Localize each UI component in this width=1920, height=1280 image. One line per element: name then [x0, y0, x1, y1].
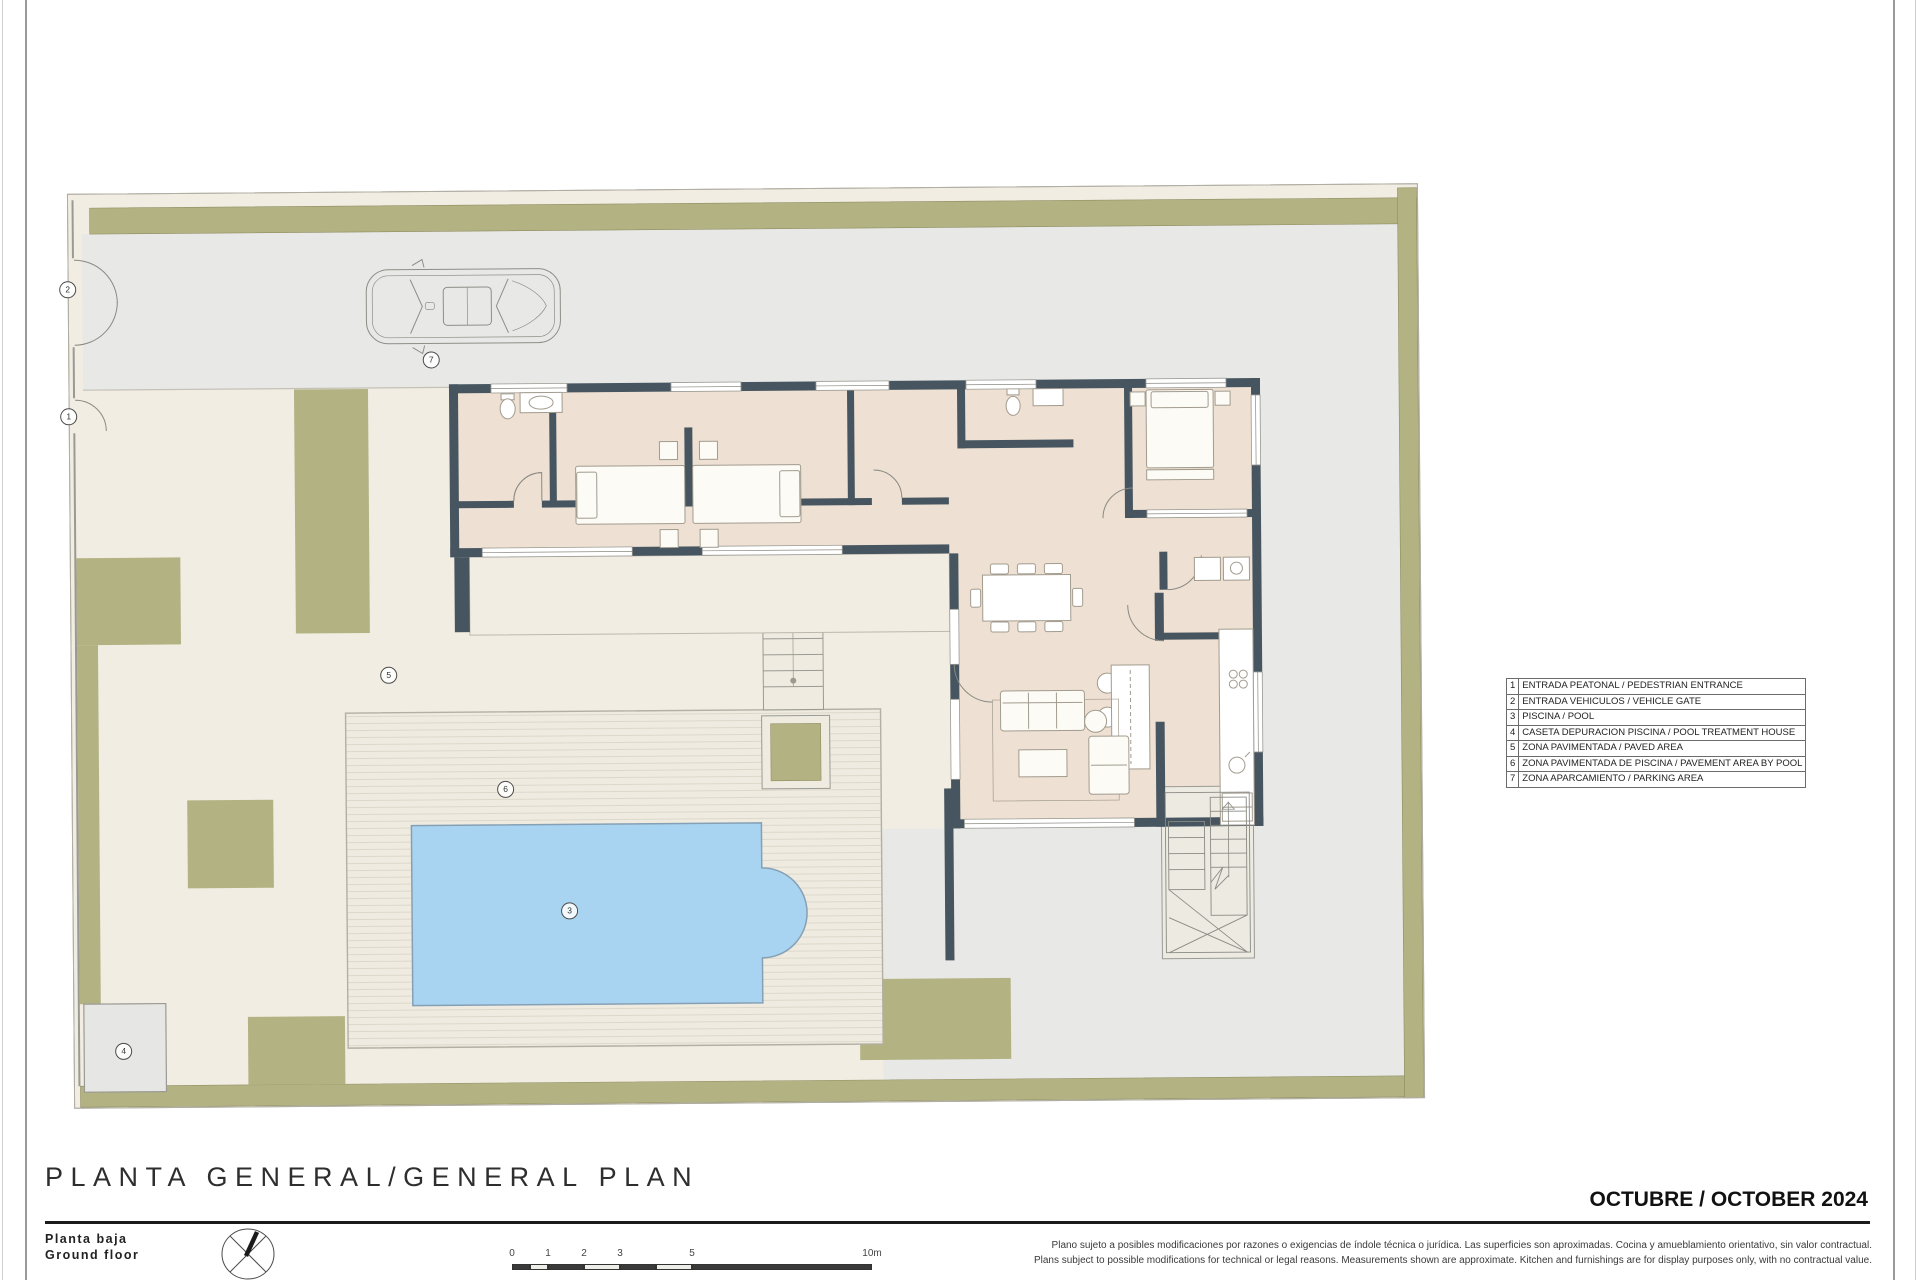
legend-row-label: ZONA PAVIMENTADA / PAVED AREA [1519, 741, 1806, 757]
legend-row-number: 4 [1507, 725, 1519, 741]
plan-marker-2: 2 [59, 281, 76, 298]
floor-label-en: Ground floor [45, 1248, 139, 1262]
plan-marker-5: 5 [380, 667, 397, 684]
plan-marker-7: 7 [423, 351, 440, 368]
disclaimer-en: Plans subject to possible modifications … [872, 1255, 1872, 1266]
garden-bed [248, 1016, 346, 1085]
legend-row-number: 2 [1507, 694, 1519, 710]
scale-segment [548, 1264, 584, 1270]
deck-planter [762, 715, 831, 789]
exterior-steps [763, 622, 824, 709]
floor-plan-drawing [59, 176, 1430, 1114]
parking-area [82, 224, 1401, 390]
legend-row-number: 6 [1507, 756, 1519, 772]
legend-row: 6ZONA PAVIMENTADA DE PISCINA / PAVEMENT … [1507, 756, 1806, 772]
garden-bed [76, 557, 181, 645]
scale-segment [530, 1264, 548, 1270]
site-plan: 1234567 [59, 176, 1430, 1114]
scale-bar: 0123510m [512, 1248, 892, 1276]
scale-label: 1 [545, 1248, 551, 1259]
legend-row-label: PISCINA / POOL [1519, 710, 1806, 726]
pool [411, 823, 807, 1006]
sheet-border-left-outer [2, 0, 3, 1280]
legend-row: 3PISCINA / POOL [1507, 710, 1806, 726]
scale-label: 5 [689, 1248, 695, 1259]
scale-segment [656, 1264, 692, 1270]
plan-marker-4: 4 [115, 1043, 132, 1060]
legend-row-label: ENTRADA PEATONAL / PEDESTRIAN ENTRANCE [1519, 679, 1806, 695]
legend-row-number: 7 [1507, 772, 1519, 788]
scale-label: 2 [581, 1248, 587, 1259]
legend-row: 1ENTRADA PEATONAL / PEDESTRIAN ENTRANCE [1507, 679, 1806, 695]
floor-label-es: Planta baja [45, 1232, 128, 1246]
covered-porch [469, 553, 950, 635]
legend-table: 1ENTRADA PEATONAL / PEDESTRIAN ENTRANCE2… [1506, 678, 1792, 788]
sheet-border-left-inner [25, 0, 27, 1280]
disclaimer-es: Plano sujeto a posibles modificaciones p… [872, 1240, 1872, 1251]
legend-row-number: 3 [1507, 710, 1519, 726]
plan-marker-6: 6 [497, 781, 514, 798]
legend-row-number: 1 [1507, 679, 1519, 695]
drawing-sheet: { "sheet": { "title": "PLANTA GENERAL/GE… [0, 0, 1920, 1280]
sheet-border-right-inner [1893, 0, 1895, 1280]
legend-row-label: ZONA APARCAMIENTO / PARKING AREA [1519, 772, 1806, 788]
legend-row: 5ZONA PAVIMENTADA / PAVED AREA [1507, 741, 1806, 757]
scale-label: 3 [617, 1248, 623, 1259]
legend-row-label: ZONA PAVIMENTADA DE PISCINA / PAVEMENT A… [1519, 756, 1806, 772]
north-compass-icon [215, 1224, 285, 1280]
plan-marker-3: 3 [561, 902, 578, 919]
legend-row: 2ENTRADA VEHICULOS / VEHICLE GATE [1507, 694, 1806, 710]
garden-strip-left [77, 645, 101, 1004]
date-label: OCTUBRE / OCTOBER 2024 [1068, 1188, 1868, 1212]
legend-row: 4CASETA DEPURACION PISCINA / POOL TREATM… [1507, 725, 1806, 741]
sheet-border-right-outer [1915, 0, 1916, 1280]
title-rule [45, 1221, 1870, 1224]
scale-label: 0 [509, 1248, 515, 1259]
garden-bed [294, 389, 370, 634]
scale-segment [512, 1264, 530, 1270]
scale-segment [692, 1264, 872, 1270]
plan-marker-1: 1 [60, 408, 77, 425]
legend-row-label: CASETA DEPURACION PISCINA / POOL TREATME… [1519, 725, 1806, 741]
legend-row: 7ZONA APARCAMIENTO / PARKING AREA [1507, 772, 1806, 788]
scale-label: 10m [862, 1248, 881, 1259]
scale-segment [620, 1264, 656, 1270]
garden-bed [187, 800, 274, 889]
scale-segment [584, 1264, 620, 1270]
legend-row-number: 5 [1507, 741, 1519, 757]
legend-row-label: ENTRADA VEHICULOS / VEHICLE GATE [1519, 694, 1806, 710]
page-title: PLANTA GENERAL/GENERAL PLAN [45, 1162, 699, 1193]
